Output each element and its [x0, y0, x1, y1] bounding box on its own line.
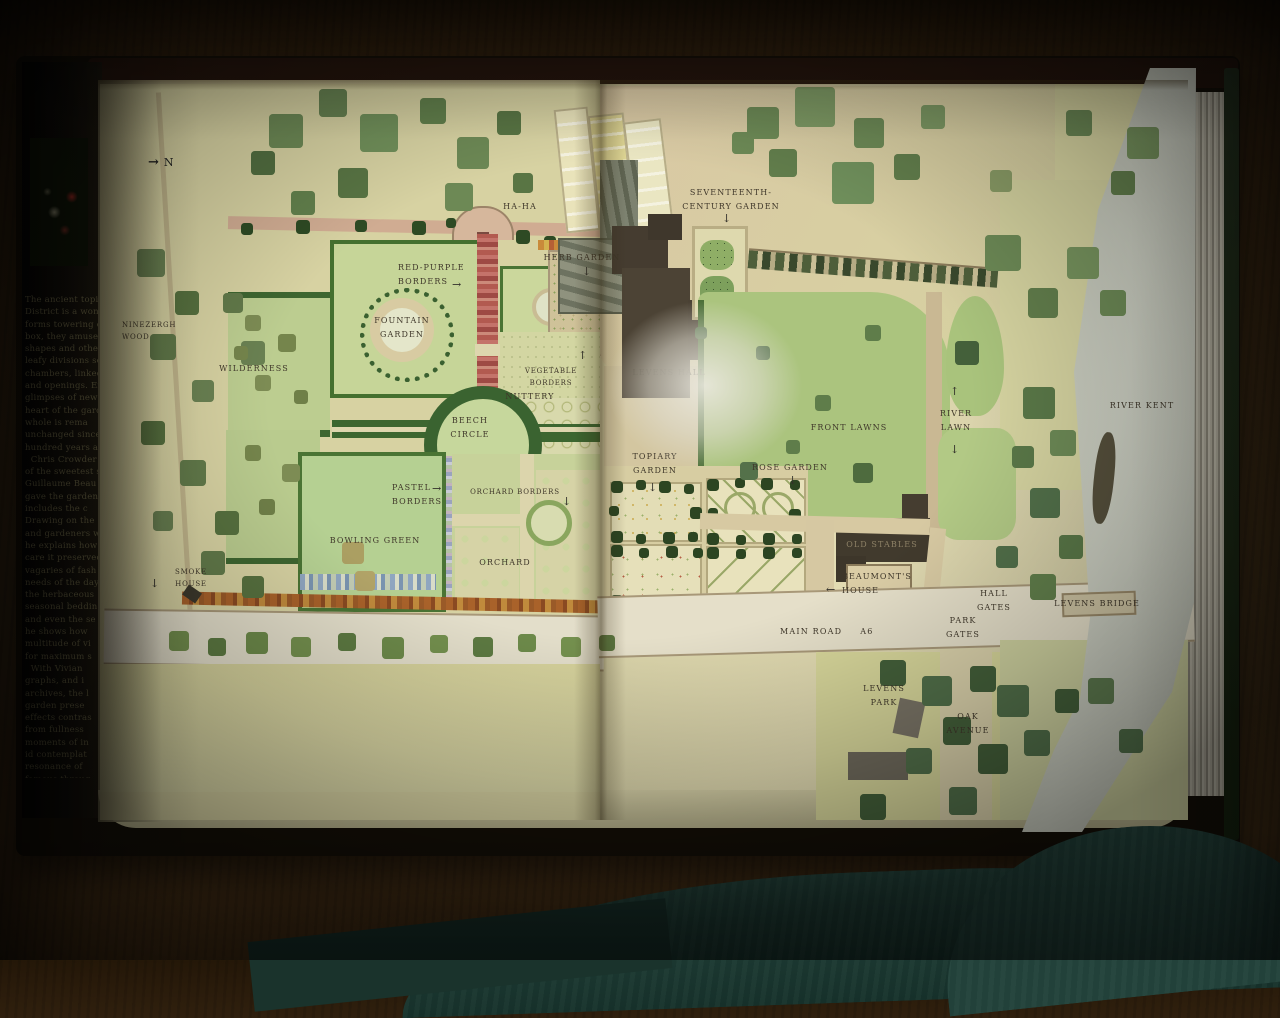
down-arrow-icon: ↓ [722, 213, 731, 224]
left-page-curve-shadow [98, 80, 162, 822]
main-road-text: MAIN ROAD [780, 627, 842, 636]
trees-levens-park [0, 0, 2, 2]
camera-flash-glare [570, 268, 840, 503]
map-label-nuttery: NUTTERY [502, 390, 558, 404]
map-label-river-lawn: RIVER LAWN [930, 407, 982, 434]
book-cover-right-edge [1224, 68, 1239, 840]
map-label-orchard: ORCHARD [477, 556, 533, 570]
right-arrow-icon: → [452, 279, 461, 290]
right-arrow-icon: → [432, 483, 441, 494]
map-label-smoke-house: SMOKE HOUSE [158, 567, 224, 591]
map-label-bowling-green: BOWLING GREEN [328, 534, 422, 548]
map-label-main-road: MAIN ROAD A6 [780, 627, 874, 636]
map-label-river-kent: RIVER KENT [1106, 399, 1178, 413]
levens-hall-tower [648, 214, 682, 240]
map-label-levens-park: LEVENS PARK [858, 682, 910, 709]
border-path-gap [475, 344, 500, 356]
map-label-orchard-borders: ORCHARD BORDERS [468, 487, 562, 499]
photo-scene: The ancient topiar District is a wonde f… [0, 0, 1280, 960]
page-top-shadow [98, 80, 1188, 90]
down-arrow-icon: ↓ [950, 444, 959, 455]
left-arrow-icon: ← [826, 584, 835, 595]
map-label-beech-circle: BEECH CIRCLE [439, 414, 501, 441]
road-number-a6: A6 [860, 627, 873, 636]
map-label-beaumonts-house: BEAUMONT'S HOUSE [842, 570, 916, 597]
map-label-seventeenth-century-garden: SEVENTEENTH- CENTURY GARDEN [672, 186, 790, 213]
bowling-green-flower-strip [300, 574, 436, 590]
map-label-oak-avenue: OAK AVENUE [941, 710, 995, 737]
map-label-park-gates: PARK GATES [938, 614, 988, 641]
map-label-fountain-garden: FOUNTAIN GARDEN [357, 314, 447, 341]
map-label-wilderness: WILDERNESS [218, 362, 290, 376]
up-arrow-icon: ↑ [950, 386, 959, 397]
knot-garden-north [700, 240, 734, 270]
north-letter: N [164, 156, 174, 169]
map-label-ha-ha: HA-HA [495, 200, 545, 214]
map-label-levens-bridge: LEVENS BRIDGE [1052, 597, 1142, 611]
main-road-west [104, 609, 605, 672]
map-label-hall-gates: HALL GATES [970, 587, 1018, 614]
field-south-left [100, 664, 600, 792]
park-building-2 [848, 752, 908, 780]
flap-text: The ancient topiar District is a wonde f… [25, 294, 103, 778]
map-label-old-stables: OLD STABLES [840, 538, 924, 552]
flap-flower-photo [30, 138, 88, 266]
